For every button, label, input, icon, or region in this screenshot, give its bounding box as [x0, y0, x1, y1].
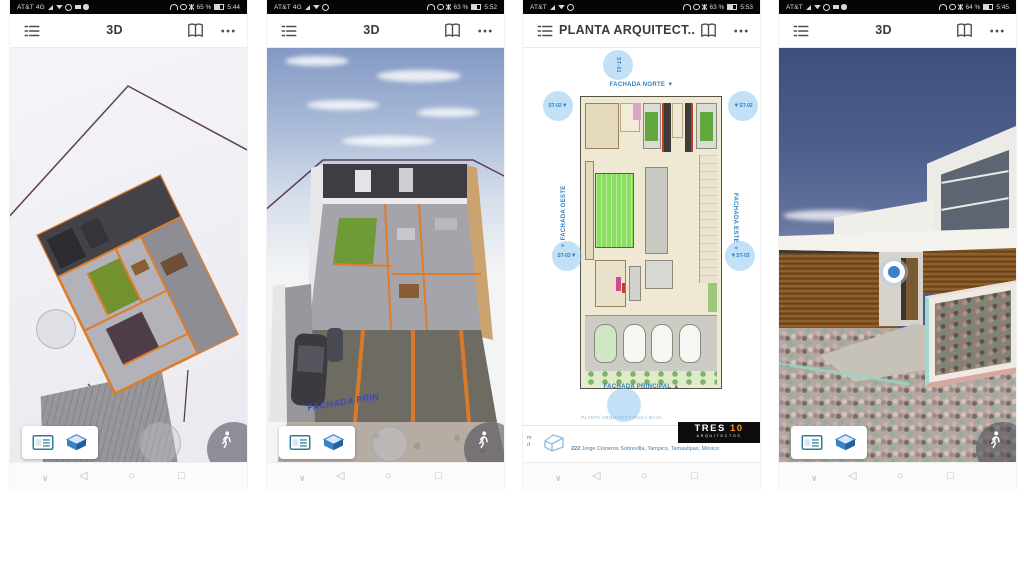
car: [290, 333, 329, 407]
signal-icon: [806, 5, 811, 10]
whatsapp-icon: [65, 4, 72, 11]
headset-icon: [170, 4, 178, 10]
label-fachada-norte[interactable]: FACHADA NORTE ▼: [523, 82, 760, 88]
page-title: 3D: [46, 23, 183, 37]
label-fachada-principal[interactable]: FACHADA PRINCIPAL ▲: [523, 384, 760, 390]
carrier-label: AT&T 4G: [17, 4, 45, 11]
tower-window: [941, 150, 1009, 238]
hide-nav-chevron[interactable]: ∨: [42, 471, 49, 485]
window-frame-line: [941, 171, 1008, 185]
carrier-label: AT&T: [530, 4, 547, 11]
android-recents-button[interactable]: □: [691, 469, 698, 483]
page-title: PLANTA ARQUITECT...: [559, 23, 696, 37]
android-nav-bar: ∨ ◁ ○ □: [267, 462, 504, 491]
plan-bathroom: [629, 266, 642, 301]
headset-icon: [683, 4, 691, 10]
marker-dot: [888, 266, 900, 278]
android-back-button[interactable]: ◁: [592, 469, 600, 483]
clock: 5:45: [996, 4, 1009, 11]
model-address-link[interactable]: 222 Jorge Cisneros Sobrevilla, Tampico, …: [571, 446, 719, 452]
viewport-3d-exterior[interactable]: [779, 48, 1016, 462]
move-joystick[interactable]: [372, 426, 408, 462]
plan-shaft: [685, 103, 693, 152]
app-toolbar: PLANTA ARQUITECT...: [523, 14, 760, 48]
walking-person-icon: [985, 430, 1005, 450]
hyper-model-house-icon[interactable]: [542, 432, 566, 454]
signal-icon: [550, 5, 555, 10]
more-menu-icon[interactable]: [476, 22, 494, 40]
android-back-button[interactable]: ◁: [848, 469, 856, 483]
sheet-caption: PLANTA ARQUITECTONICA BAJA: [523, 415, 720, 420]
android-home-button[interactable]: ○: [128, 469, 135, 483]
wifi-icon: [313, 5, 320, 10]
plan-room: [633, 103, 641, 120]
mail-icon: [75, 5, 81, 10]
info-sheet-button[interactable]: [32, 434, 54, 451]
viewport-3d-perspective[interactable]: FACHADA PRIN: [267, 48, 504, 462]
plan-garage: [585, 315, 717, 370]
plan-corridor: [699, 155, 717, 283]
view-toolbar: [791, 426, 867, 459]
phone-screenshot-3: AT&T 63 % 5:53 PLANTA ARQUITECT...: [523, 0, 760, 489]
clipped-edge-text: m d: [527, 435, 532, 449]
info-sheet-button[interactable]: [801, 434, 823, 451]
app-toolbar: 3D: [779, 14, 1016, 48]
model-3d-button[interactable]: [834, 433, 857, 452]
carrier-label: AT&T: [786, 4, 803, 11]
android-nav-bar: ∨ ◁ ○ □: [10, 462, 247, 491]
android-home-button[interactable]: ○: [897, 469, 904, 483]
facebook-icon: [83, 4, 89, 10]
marker-st02-left[interactable]: ST-02▼: [543, 91, 573, 121]
plan-car: [623, 324, 645, 363]
bluetooth-icon: [446, 4, 451, 10]
phone-screenshot-2: AT&T 4G 63 % 5:52 3D: [267, 0, 504, 489]
navigation-target-marker[interactable]: [883, 261, 905, 283]
plan-shaft: [662, 103, 670, 152]
tres10-logo: TRES 10 ARQUITECTOS: [678, 422, 760, 443]
plan-room: [585, 103, 619, 150]
wood-door: [906, 258, 918, 320]
book-icon[interactable]: [955, 21, 974, 40]
battery-icon: [983, 4, 993, 11]
android-nav-bar: ∨ ◁ ○ □: [523, 462, 760, 491]
plan-dining-table: [645, 167, 667, 254]
battery-percent: 64 %: [966, 4, 981, 11]
android-recents-button[interactable]: □: [947, 469, 954, 483]
menu-list-icon[interactable]: [23, 22, 41, 40]
wifi-icon: [558, 5, 565, 10]
android-back-button[interactable]: ◁: [336, 469, 344, 483]
menu-list-icon[interactable]: [792, 22, 810, 40]
alarm-icon: [949, 4, 956, 11]
battery-percent: 63 %: [710, 4, 725, 11]
mail-icon: [833, 5, 839, 10]
carrier-label: AT&T 4G: [274, 4, 302, 11]
signal-icon: [305, 5, 310, 10]
signal-icon: [48, 5, 53, 10]
plan-fixture: [616, 277, 621, 290]
alarm-icon: [437, 4, 444, 11]
model-3d-button[interactable]: [322, 433, 345, 452]
view-toolbar: [22, 426, 98, 459]
facebook-icon: [841, 4, 847, 10]
app-toolbar: 3D: [10, 14, 247, 48]
battery-percent: 63 %: [454, 4, 469, 11]
more-menu-icon[interactable]: [732, 22, 750, 40]
book-icon[interactable]: [443, 21, 462, 40]
plan-fixture: [622, 283, 626, 293]
menu-list-icon[interactable]: [536, 22, 554, 40]
viewport-3d-aerial[interactable]: [10, 48, 247, 462]
more-menu-icon[interactable]: [219, 22, 237, 40]
plan-car: [679, 324, 701, 363]
headset-icon: [939, 4, 947, 10]
alarm-icon: [693, 4, 700, 11]
orbit-joystick[interactable]: [36, 309, 76, 349]
walking-person-icon: [216, 430, 236, 450]
headset-icon: [427, 4, 435, 10]
menu-list-icon[interactable]: [280, 22, 298, 40]
battery-icon: [471, 4, 481, 11]
plan-room: [672, 103, 683, 138]
battery-percent: 65 %: [197, 4, 212, 11]
hide-nav-chevron[interactable]: ∨: [299, 471, 306, 485]
clock: 5:52: [484, 4, 497, 11]
bluetooth-icon: [958, 4, 963, 10]
alarm-icon: [180, 4, 187, 11]
stone-planter: [925, 280, 1016, 389]
android-recents-button[interactable]: □: [178, 469, 185, 483]
clock: 5:53: [740, 4, 753, 11]
plan-bed: [645, 112, 658, 141]
status-bar: AT&T 63 % 5:53: [523, 0, 760, 14]
plan-car: [594, 324, 616, 363]
floor-plan-drawing: [580, 96, 722, 389]
walking-person-icon: [473, 430, 493, 450]
plan-car: [651, 324, 673, 363]
status-bar: AT&T 64 % 5:45: [779, 0, 1016, 14]
wifi-icon: [814, 5, 821, 10]
hide-nav-chevron[interactable]: ∨: [811, 471, 818, 485]
model-3d-button[interactable]: [65, 433, 88, 452]
battery-icon: [214, 4, 224, 11]
android-nav-bar: ∨ ◁ ○ □: [779, 462, 1016, 491]
whatsapp-icon: [322, 4, 329, 11]
bluetooth-icon: [189, 4, 194, 10]
plan-terrace: [585, 161, 593, 260]
phone-screenshot-4: AT&T 64 % 5:45 3D: [779, 0, 1016, 489]
planter-gravel: [935, 290, 1011, 375]
marker-st03-left[interactable]: ST-03▼: [552, 241, 582, 271]
page-title: 3D: [815, 23, 952, 37]
whatsapp-icon: [567, 4, 574, 11]
plan-lawn: [585, 371, 717, 386]
plan-kitchen: [645, 260, 673, 289]
battery-icon: [727, 4, 737, 11]
info-sheet-button[interactable]: [289, 434, 311, 451]
marker-st01[interactable]: ST-01: [603, 50, 633, 80]
sheet-footer: m d 222 Jorge Cisneros Sobrevilla, Tampi…: [523, 426, 760, 462]
book-icon[interactable]: [186, 21, 205, 40]
view-toolbar: [279, 426, 355, 459]
android-recents-button[interactable]: □: [435, 469, 442, 483]
android-back-button[interactable]: ◁: [79, 469, 87, 483]
marker-st03-right[interactable]: ▼ST-03: [725, 241, 755, 271]
whatsapp-icon: [823, 4, 830, 11]
house-model-aerial: [10, 48, 247, 462]
android-home-button[interactable]: ○: [641, 469, 648, 483]
window-frame-line: [941, 197, 1008, 211]
more-menu-icon[interactable]: [988, 22, 1006, 40]
house-model-perspective: [267, 48, 504, 462]
plan-garden: [708, 283, 716, 312]
hide-nav-chevron[interactable]: ∨: [555, 471, 562, 485]
move-joystick[interactable]: [139, 422, 181, 462]
marker-st02-right[interactable]: ▼ST-02: [728, 91, 758, 121]
book-icon[interactable]: [699, 21, 718, 40]
clock: 5:44: [227, 4, 240, 11]
phone-screenshot-1: AT&T 4G 65 % 5:44 3D: [10, 0, 247, 489]
plan-courtyard: [595, 173, 634, 249]
status-bar: AT&T 4G 63 % 5:52: [267, 0, 504, 14]
android-home-button[interactable]: ○: [385, 469, 392, 483]
status-bar: AT&T 4G 65 % 5:44: [10, 0, 247, 14]
bluetooth-icon: [702, 4, 707, 10]
page-title: 3D: [303, 23, 440, 37]
app-toolbar: 3D: [267, 14, 504, 48]
plan-bed: [700, 112, 713, 141]
wifi-icon: [56, 5, 63, 10]
viewport-plan-sheet[interactable]: ST-01 FACHADA NORTE ▼ ST-02▼ ▼ST-02 ▼ FA…: [523, 48, 760, 462]
